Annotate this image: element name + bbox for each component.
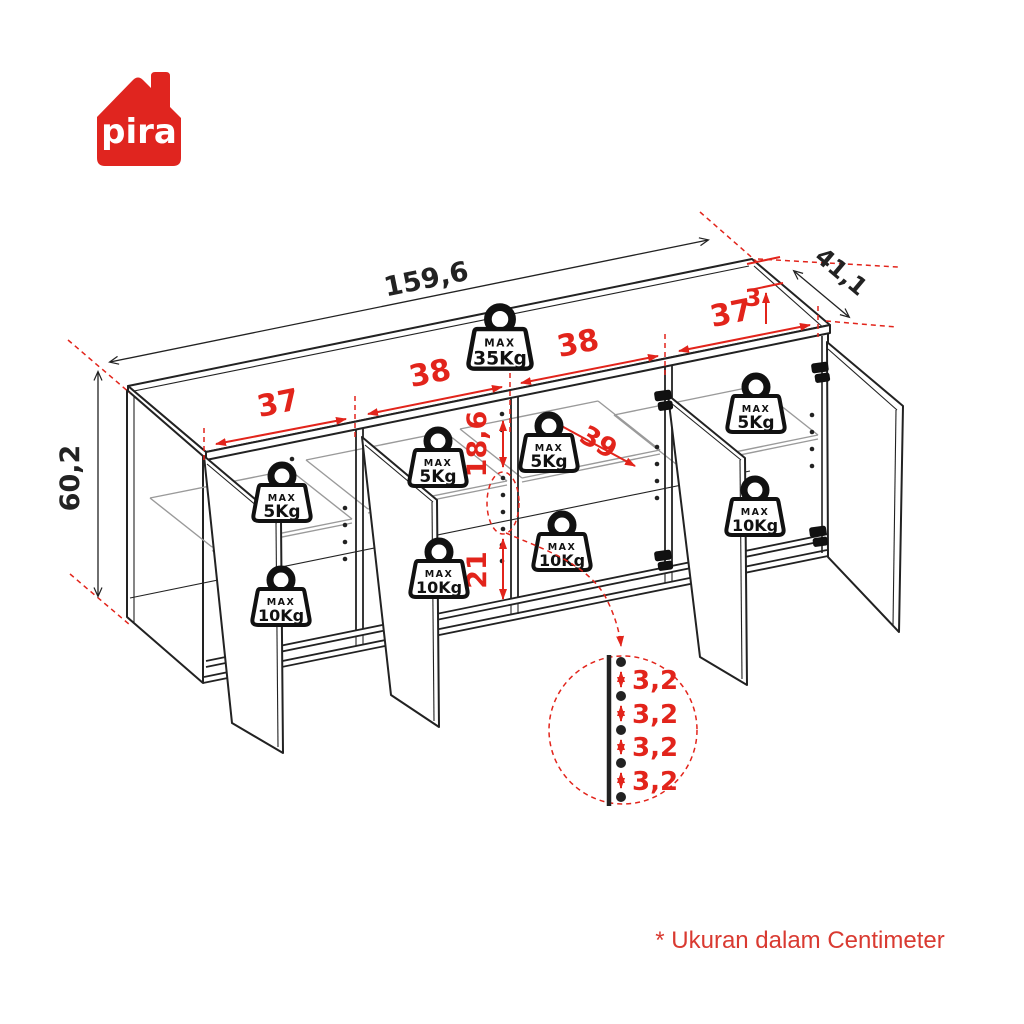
dim-hole-spacing-1: 3,2 — [632, 666, 678, 696]
pira-logo: pira — [97, 72, 181, 166]
diagram-page: 37 38 38 37 159,6 41,1 60,2 3 18,6 39 21 — [0, 0, 1024, 1024]
door-3-open — [668, 395, 747, 685]
dim-shelf-clearance: 18,6 — [462, 411, 493, 478]
dim-overall-width: 159,6 — [381, 256, 471, 303]
dim-hole-spacing-4: 3,2 — [632, 767, 678, 797]
weight-limit-shelf-icon: MAX 5Kg — [727, 376, 784, 433]
weight-bottom-value: 10Kg — [539, 551, 585, 570]
divider-1 — [356, 428, 363, 646]
weight-shelf-value: 5Kg — [737, 413, 774, 433]
weight-limit-shelf-icon: MAX 5Kg — [253, 465, 310, 522]
logo-text: pira — [101, 112, 177, 152]
door-4-open — [827, 342, 903, 632]
weight-bottom-value: 10Kg — [258, 606, 304, 625]
dim-hole-spacing-2: 3,2 — [632, 700, 678, 730]
weight-limit-shelf-icon: MAX 5Kg — [520, 415, 577, 472]
dim-height: 60,2 — [55, 445, 86, 512]
dim-hole-spacing-3: 3,2 — [632, 733, 678, 763]
weight-shelf-value: 5Kg — [263, 502, 300, 522]
weight-limit-shelf-icon: MAX 5Kg — [409, 430, 466, 487]
divider-2 — [511, 396, 518, 615]
weight-shelf-value: 5Kg — [419, 467, 456, 487]
weight-bottom-value: 10Kg — [416, 578, 462, 597]
assembly-diagram: 37 38 38 37 159,6 41,1 60,2 3 18,6 39 21 — [0, 0, 1024, 1024]
weight-top-value: 35Kg — [473, 348, 527, 369]
weight-bottom-value: 10Kg — [732, 516, 778, 535]
hinge-icon — [654, 550, 672, 571]
units-footnote: * Ukuran dalam Centimeter — [655, 927, 944, 954]
dim-top-thickness: 3 — [745, 284, 762, 312]
weight-shelf-value: 5Kg — [530, 452, 567, 472]
weight-limit-bottom-icon: MAX 10Kg — [533, 514, 590, 570]
